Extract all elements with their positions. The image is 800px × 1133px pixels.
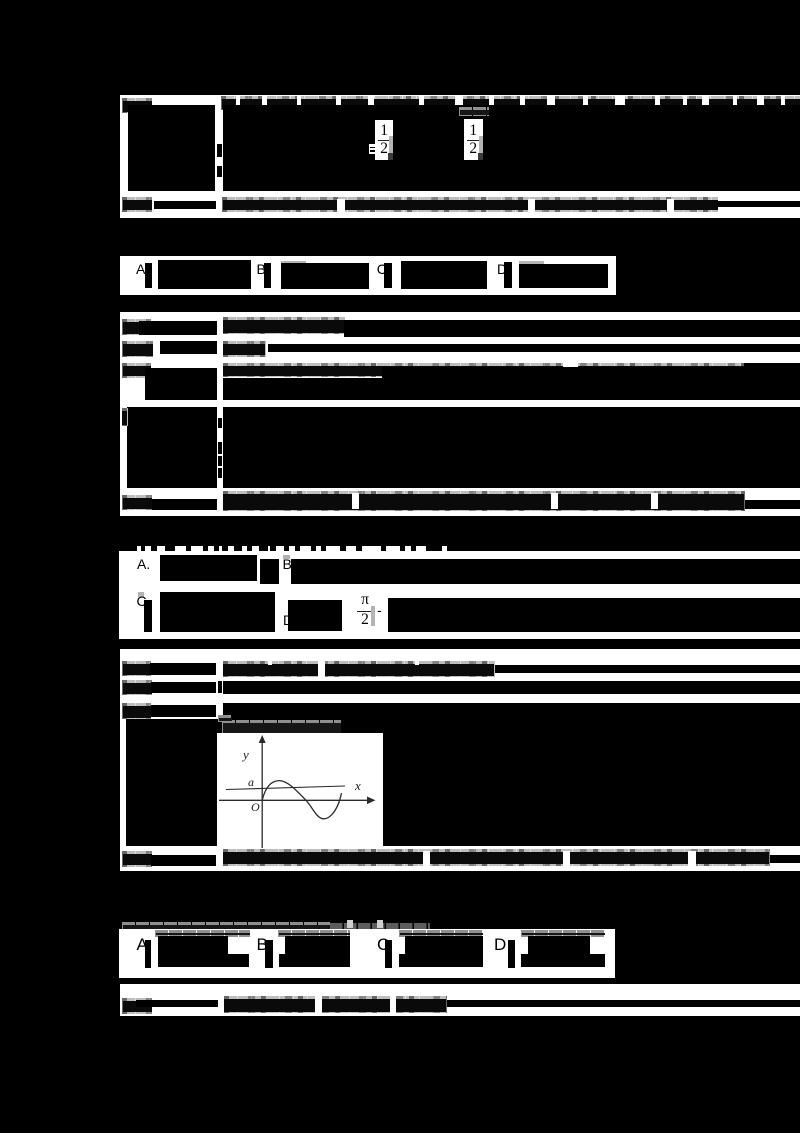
svg-text:x: x <box>354 778 361 793</box>
svg-text:O: O <box>251 800 260 814</box>
svg-text:a: a <box>248 775 254 789</box>
svg-text:y: y <box>241 747 249 762</box>
